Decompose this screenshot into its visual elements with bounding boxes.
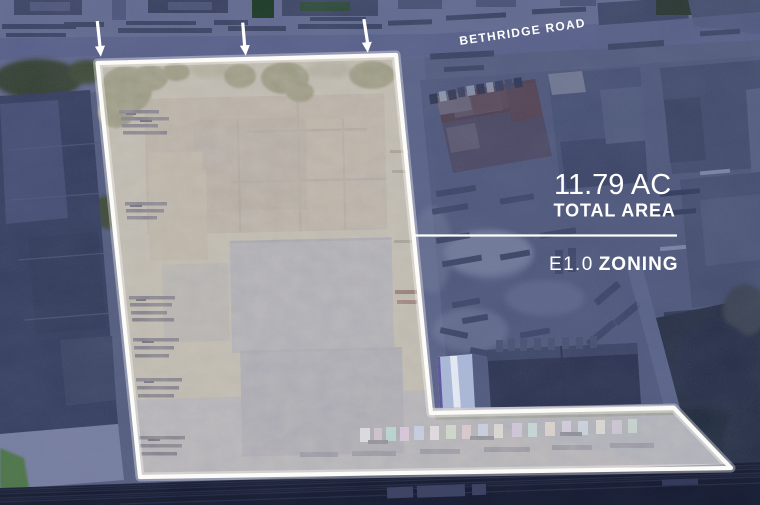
svg-text:E1.0ZONING: E1.0ZONING xyxy=(549,254,679,275)
svg-text:11.79 AC: 11.79 AC xyxy=(554,169,671,201)
svg-text:TOTAL AREA: TOTAL AREA xyxy=(554,201,676,221)
